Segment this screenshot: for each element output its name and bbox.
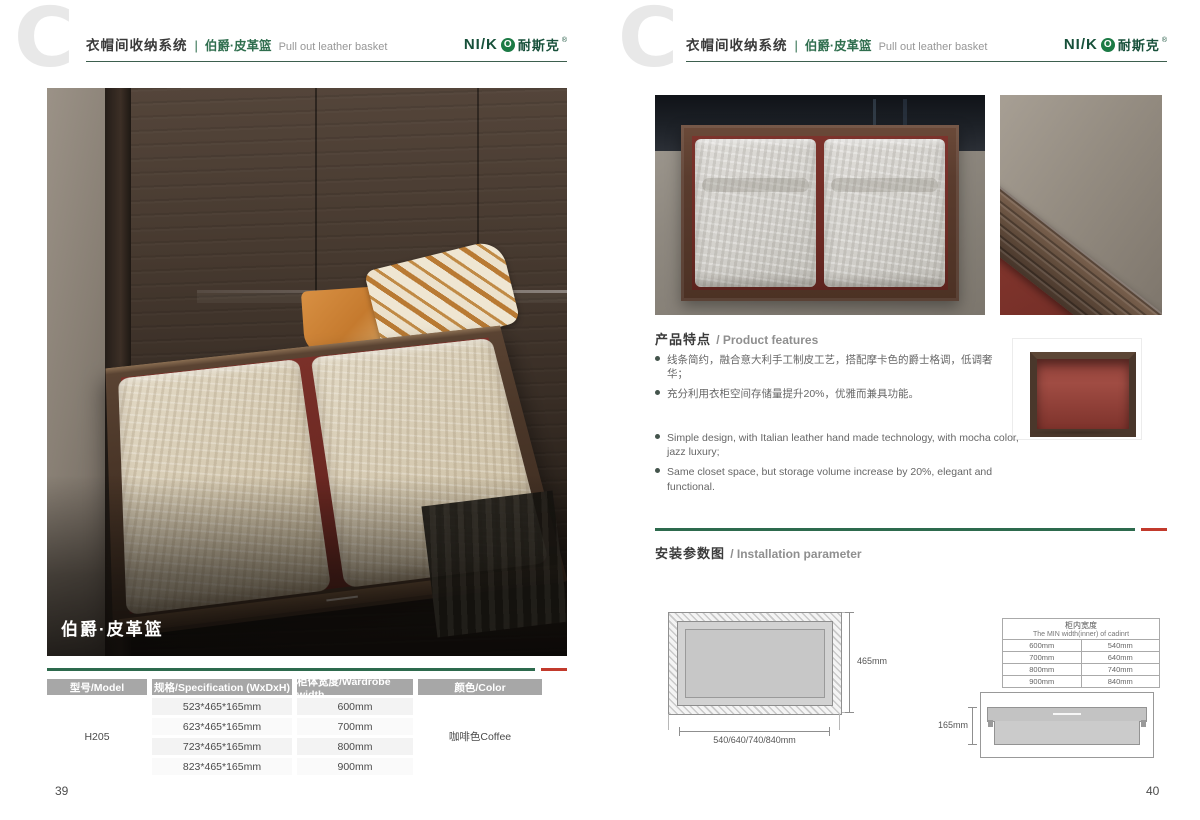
basket-body-outline	[994, 721, 1140, 745]
width-cell: 900mm	[297, 758, 413, 775]
side-view-diagram	[980, 692, 1154, 758]
table-row: 700mm 640mm	[1003, 652, 1160, 664]
c-watermark: C	[618, 0, 678, 78]
divider-red-accent	[1141, 528, 1167, 531]
width-cell: 600mm	[297, 698, 413, 715]
lower-basket-items	[421, 490, 567, 637]
title-separator: |	[795, 38, 798, 53]
feature-item: Simple design, with Italian leather hand…	[655, 431, 1020, 459]
table-row: 600mm 540mm	[1003, 640, 1160, 652]
width-dimension-line	[679, 731, 830, 732]
corner-detail-photo	[1000, 95, 1162, 315]
rail-bracket	[988, 720, 993, 727]
registered-mark: ®	[562, 37, 567, 44]
feature-text: Simple design, with Italian leather hand…	[667, 431, 1020, 459]
logo-text-cn: 耐斯克	[518, 35, 560, 54]
installation-heading: 安装参数图 / Installation parameter	[655, 541, 862, 563]
logo-text-en: NI/K	[464, 36, 498, 53]
catalog-spread: C 衣帽间收纳系统 | 伯爵·皮革篮 Pull out leather bask…	[0, 0, 1200, 820]
col-header-color: 颜色/Color	[418, 679, 542, 695]
model-cell: H205	[47, 698, 147, 775]
installation-heading-cn: 安装参数图	[655, 546, 725, 561]
col-header-spec: 规格/Specification (WxDxH)	[152, 679, 292, 695]
feature-list-cn: 线条简约，融合意大利手工制皮工艺，搭配摩卡色的爵士格调，低调奢华； 充分利用衣柜…	[655, 353, 1000, 408]
rail-bracket	[1141, 720, 1146, 727]
logo-o-icon: O	[501, 38, 515, 52]
installation-heading-en: / Installation parameter	[730, 547, 861, 561]
feature-item: 线条简约，融合意大利手工制皮工艺，搭配摩卡色的爵士格调，低调奢华；	[655, 353, 1000, 381]
product-name-cn: 伯爵·皮革篮	[205, 35, 272, 54]
page-40: C 衣帽间收纳系统 | 伯爵·皮革篮 Pull out leather bask…	[600, 0, 1200, 820]
product-name-en: Pull out leather basket	[279, 41, 388, 53]
width-dimension-label: 540/640/740/840mm	[679, 735, 830, 745]
features-heading-en: / Product features	[716, 333, 818, 347]
min-width-title-cn: 柜内宽度	[1003, 620, 1159, 631]
product-name-cn: 伯爵·皮革篮	[805, 35, 872, 54]
top-view-diagram	[668, 612, 842, 715]
feature-text: 充分利用衣柜空间存储量提升20%，优雅而兼具功能。	[667, 387, 919, 401]
divider-red-accent	[541, 668, 567, 671]
features-heading-cn: 产品特点	[655, 332, 711, 347]
logo-text-en: NI/K	[1064, 36, 1098, 53]
wardrobe-photo: 伯爵·皮革篮	[47, 88, 567, 656]
photo-caption: 伯爵·皮革篮	[61, 615, 164, 640]
col-header-width: 柜体宽度/Wardrobe width	[297, 679, 413, 695]
wardrobe-width-value: 900mm	[1003, 676, 1082, 688]
divider-green-line	[655, 528, 1135, 531]
basket-rail-front	[987, 707, 1147, 722]
header-rule	[686, 61, 1167, 62]
height-dimension-line	[972, 707, 973, 745]
title-separator: |	[195, 38, 198, 53]
pull-out-basket	[681, 125, 959, 301]
width-cell: 800mm	[297, 738, 413, 755]
basket-product-shot	[1030, 352, 1136, 437]
header-titles: 衣帽间收纳系统 | 伯爵·皮革篮 Pull out leather basket	[686, 34, 987, 54]
min-inner-width-value: 740mm	[1081, 664, 1160, 676]
section-divider	[655, 528, 1167, 531]
color-cell: 咖啡色Coffee	[418, 698, 542, 775]
registered-mark: ®	[1162, 37, 1167, 44]
features-heading: 产品特点 / Product features	[655, 327, 818, 349]
system-title: 衣帽间收纳系统	[686, 34, 788, 54]
basket-frame-outline	[677, 621, 833, 706]
min-width-table-header: 柜内宽度 The MIN width(inner) of cadinrt	[1003, 619, 1160, 640]
wardrobe-width-value: 600mm	[1003, 640, 1082, 652]
product-name-en: Pull out leather basket	[879, 41, 988, 53]
folded-sweater	[695, 139, 816, 287]
basket-inset-photo	[1012, 338, 1142, 440]
extension-line	[668, 714, 669, 730]
drawer-closeup-photo	[655, 95, 985, 315]
min-inner-width-value: 540mm	[1081, 640, 1160, 652]
spec-cell: 523*465*165mm	[152, 698, 292, 715]
min-width-table: 柜内宽度 The MIN width(inner) of cadinrt 600…	[1002, 618, 1160, 688]
table-row: 800mm 740mm	[1003, 664, 1160, 676]
bullet-icon	[655, 434, 660, 439]
product-shadow	[1025, 430, 1129, 435]
spec-table: 型号/Model 规格/Specification (WxDxH) 柜体宽度/W…	[47, 679, 542, 775]
bullet-icon	[655, 356, 660, 361]
logo-text-cn: 耐斯克	[1118, 35, 1160, 54]
page-number: 40	[1146, 784, 1159, 798]
page-header: 衣帽间收纳系统 | 伯爵·皮革篮 Pull out leather basket…	[86, 34, 567, 54]
min-inner-width-value: 840mm	[1081, 676, 1160, 688]
min-width-title-en: The MIN width(inner) of cadinrt	[1003, 631, 1159, 638]
depth-dimension-label: 465mm	[857, 656, 887, 666]
header-rule	[86, 61, 567, 62]
folded-sweater	[824, 139, 945, 287]
feature-item: 充分利用衣柜空间存储量提升20%，优雅而兼具功能。	[655, 387, 1000, 401]
divider-green-line	[47, 668, 535, 671]
feature-list-en: Simple design, with Italian leather hand…	[655, 431, 1020, 500]
feature-item: Same closet space, but storage volume in…	[655, 465, 1020, 493]
spec-cell: 823*465*165mm	[152, 758, 292, 775]
logo-o-icon: O	[1101, 38, 1115, 52]
depth-dimension-line	[849, 612, 850, 713]
c-watermark: C	[14, 0, 74, 78]
min-inner-width-value: 640mm	[1081, 652, 1160, 664]
bullet-icon	[655, 468, 660, 473]
table-row: 900mm 840mm	[1003, 676, 1160, 688]
wardrobe-width-value: 700mm	[1003, 652, 1082, 664]
basket-interior-outline	[685, 629, 825, 698]
page-number: 39	[55, 784, 68, 798]
system-title: 衣帽间收纳系统	[86, 34, 188, 54]
height-dimension-label: 165mm	[934, 720, 968, 730]
width-cell: 700mm	[297, 718, 413, 735]
feature-text: 线条简约，融合意大利手工制皮工艺，搭配摩卡色的爵士格调，低调奢华；	[667, 353, 1000, 381]
page-header: 衣帽间收纳系统 | 伯爵·皮革篮 Pull out leather basket…	[686, 34, 1167, 54]
extension-line	[839, 714, 840, 730]
col-header-model: 型号/Model	[47, 679, 147, 695]
nisko-logo: NI/K O 耐斯克 ®	[1064, 35, 1167, 54]
wardrobe-width-value: 800mm	[1003, 664, 1082, 676]
header-titles: 衣帽间收纳系统 | 伯爵·皮革篮 Pull out leather basket	[86, 34, 387, 54]
page-39: C 衣帽间收纳系统 | 伯爵·皮革篮 Pull out leather bask…	[0, 0, 600, 820]
spec-cell: 723*465*165mm	[152, 738, 292, 755]
bullet-icon	[655, 390, 660, 395]
feature-text: Same closet space, but storage volume in…	[667, 465, 1020, 493]
section-divider	[47, 668, 567, 671]
nisko-logo: NI/K O 耐斯克 ®	[464, 35, 567, 54]
spec-cell: 623*465*165mm	[152, 718, 292, 735]
